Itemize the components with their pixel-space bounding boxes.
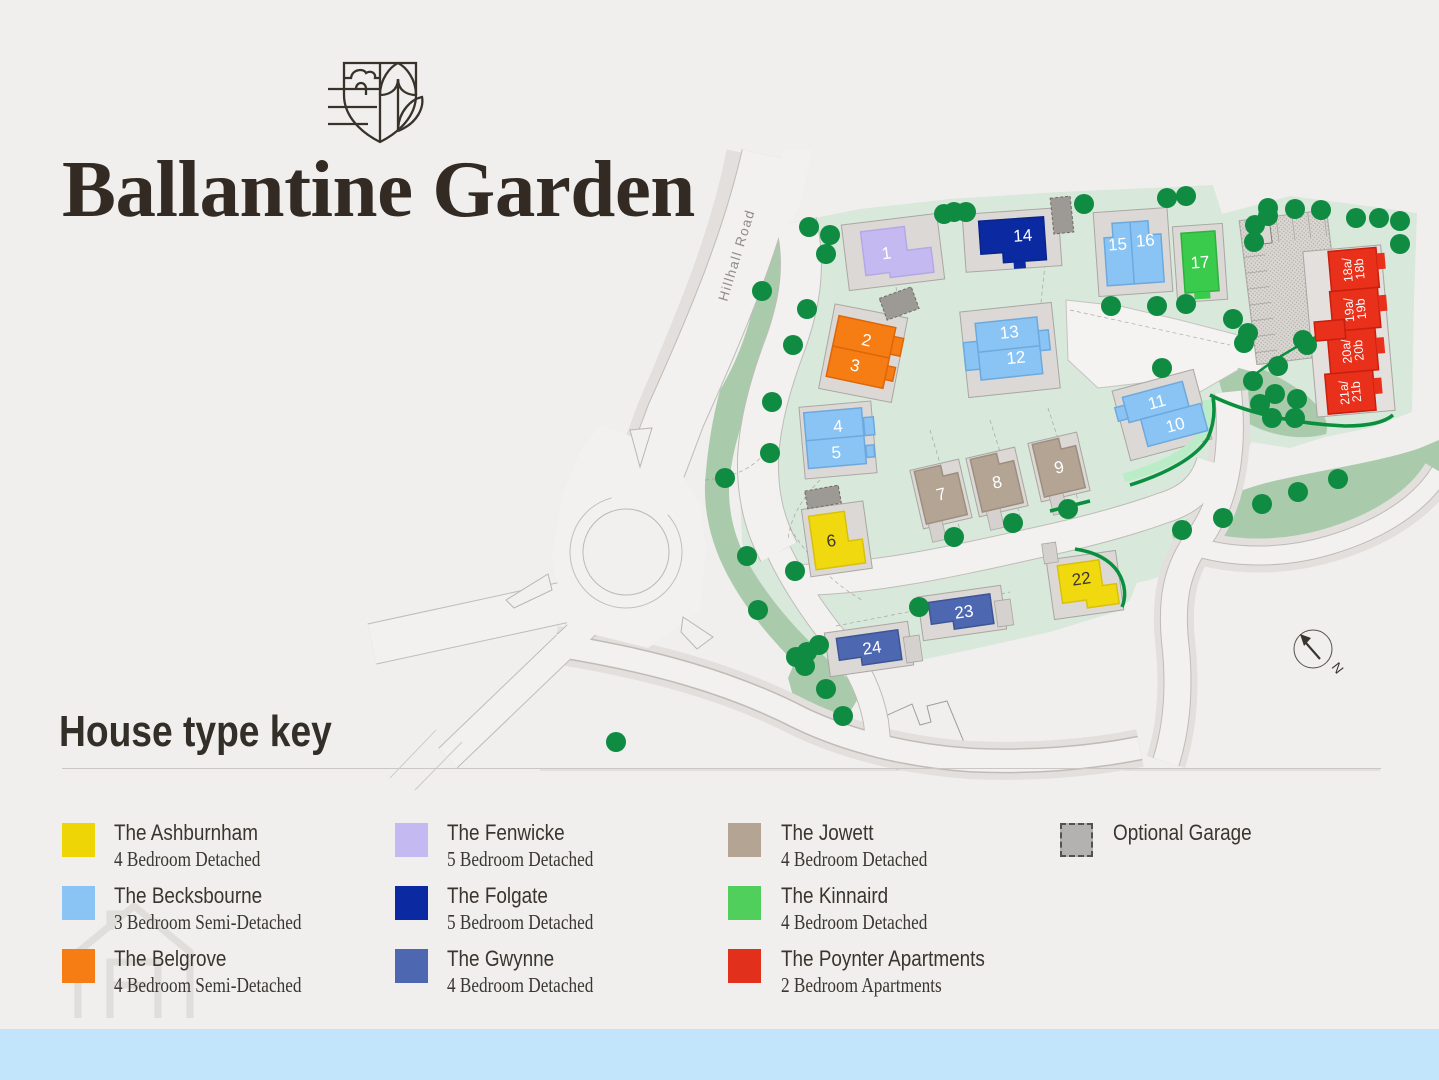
svg-text:4: 4 <box>832 416 843 436</box>
svg-text:21a/21b: 21a/21b <box>1336 378 1364 405</box>
svg-text:19a/19b: 19a/19b <box>1341 296 1369 323</box>
svg-text:16: 16 <box>1135 230 1155 250</box>
svg-text:24: 24 <box>861 637 882 658</box>
svg-text:5: 5 <box>831 443 842 463</box>
svg-text:23: 23 <box>953 601 974 622</box>
svg-text:18a/18b: 18a/18b <box>1340 256 1368 283</box>
svg-text:17: 17 <box>1190 252 1210 272</box>
svg-text:15: 15 <box>1107 234 1127 254</box>
svg-text:12: 12 <box>1006 347 1027 368</box>
svg-text:22: 22 <box>1071 568 1092 589</box>
svg-text:13: 13 <box>999 322 1020 343</box>
svg-text:N: N <box>1329 660 1347 677</box>
svg-text:14: 14 <box>1013 226 1033 246</box>
svg-text:20a/20b: 20a/20b <box>1339 337 1367 364</box>
